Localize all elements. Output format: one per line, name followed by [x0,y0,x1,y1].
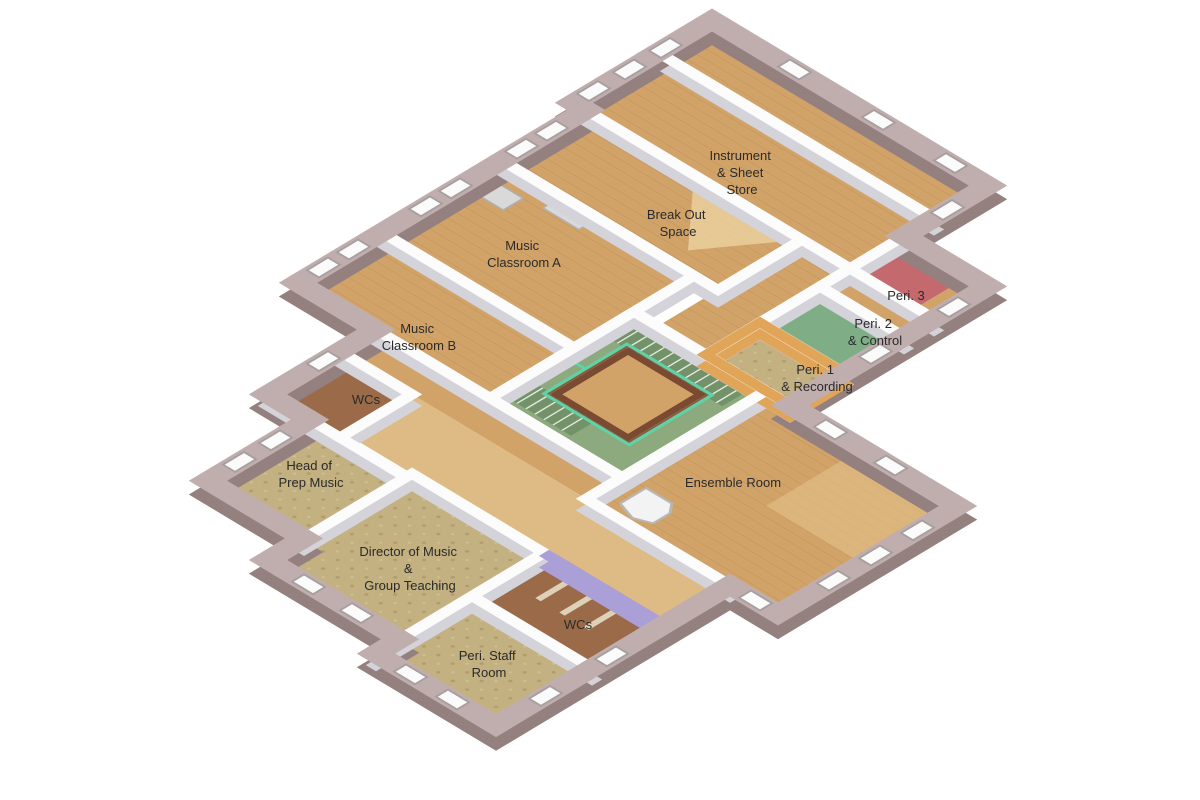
room-label-ensemble-room: Ensemble Room [685,475,781,490]
floor-plan-stage: Instrument & Sheet Store Break Out Space… [0,0,1200,800]
room-label-wcs-upper: WCs [352,392,381,407]
floor-plan-svg: Instrument & Sheet Store Break Out Space… [0,0,1200,800]
building [0,13,1200,768]
room-label-peri-3: Peri. 3 [887,288,925,303]
room-label-wcs-lower: WCs [564,617,593,632]
